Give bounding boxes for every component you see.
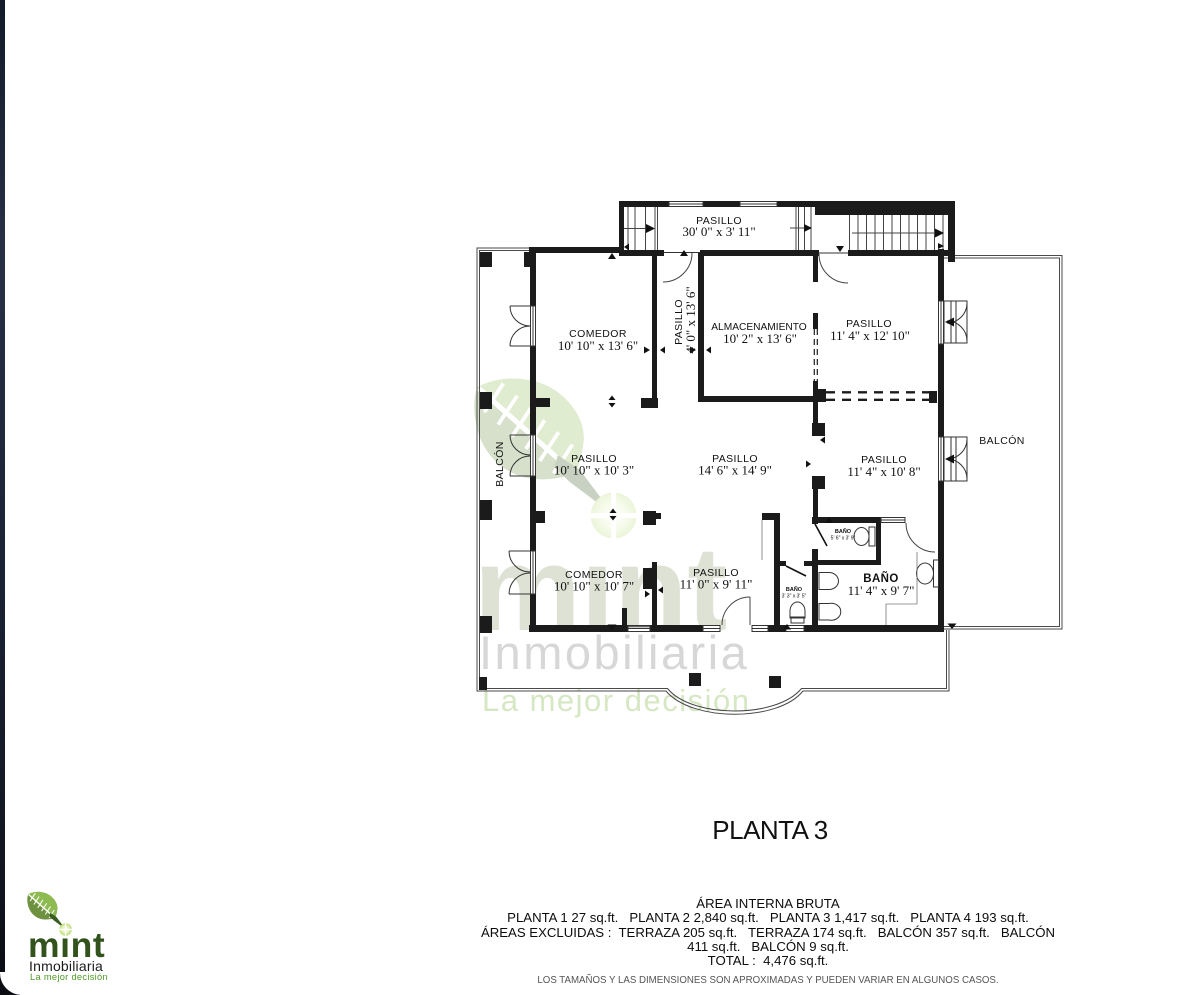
svg-text:Inmobiliaria: Inmobiliaria bbox=[479, 626, 749, 679]
svg-text:BALCÓN: BALCÓN bbox=[979, 434, 1025, 447]
svg-text:10' 10" x 10' 7": 10' 10" x 10' 7" bbox=[554, 579, 634, 594]
svg-text:BALCÓN: BALCÓN bbox=[493, 441, 506, 487]
svg-text:11' 4" x 9' 7": 11' 4" x 9' 7" bbox=[848, 583, 915, 598]
svg-text:BAÑO: BAÑO bbox=[786, 586, 803, 593]
svg-text:3' 3" x 3' 5": 3' 3" x 3' 5" bbox=[782, 594, 807, 600]
svg-text:11' 4" x 12' 10": 11' 4" x 12' 10" bbox=[830, 328, 910, 343]
svg-text:10' 10" x 10' 3": 10' 10" x 10' 3" bbox=[554, 463, 634, 478]
svg-text:10' 10" x 13' 6": 10' 10" x 13' 6" bbox=[558, 338, 638, 353]
svg-text:4' 0" x 13' 6": 4' 0" x 13' 6" bbox=[683, 286, 698, 353]
svg-text:BAÑO: BAÑO bbox=[835, 528, 852, 535]
svg-text:10' 2" x 13' 6": 10' 2" x 13' 6" bbox=[723, 331, 797, 346]
svg-text:30' 0" x 3' 11": 30' 0" x 3' 11" bbox=[682, 224, 755, 239]
svg-text:14' 6" x 14' 9": 14' 6" x 14' 9" bbox=[698, 463, 772, 478]
svg-text:5' 6" x 3' 9": 5' 6" x 3' 9" bbox=[831, 536, 856, 542]
svg-text:11' 4" x 10' 8": 11' 4" x 10' 8" bbox=[847, 464, 920, 479]
svg-text:11' 0" x 9' 11": 11' 0" x 9' 11" bbox=[680, 577, 753, 592]
